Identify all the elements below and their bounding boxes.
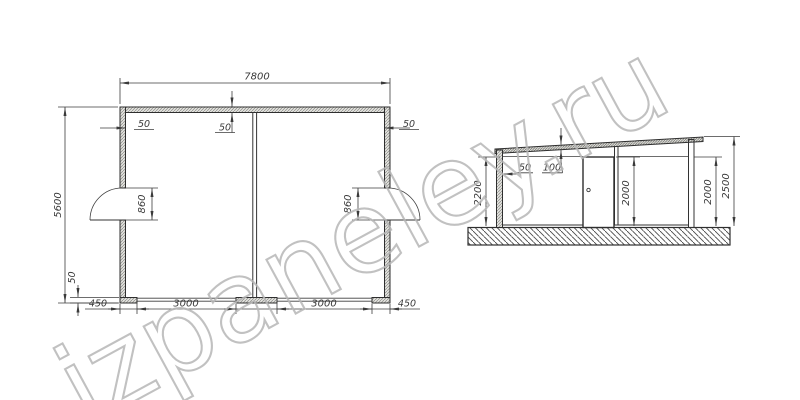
elevation-foundation — [468, 228, 730, 246]
technical-drawing-page: 7800 5600 50 50 50 — [0, 0, 800, 400]
elevation-dim-total-height-label: 2500 — [721, 173, 732, 198]
plan-dim-total-depth: 5600 — [53, 107, 118, 303]
plan-dim-total-width-label: 7800 — [244, 72, 269, 83]
elevation-dim-door-height-label: 2000 — [621, 180, 632, 205]
elevation-door-handle — [587, 188, 590, 191]
plan-left-door-arc — [90, 188, 122, 220]
plan-left-wall-upper — [120, 107, 126, 188]
elevation-dim-right-inner-height-label: 2000 — [703, 179, 714, 204]
plan-dim-bottom-right-segment-label: 450 — [398, 299, 416, 310]
plan-dim-bottom-wall-thickness-label: 50 — [67, 271, 78, 283]
plan-dim-left-door-width: 860 — [126, 188, 158, 220]
plan-left-door — [90, 188, 122, 220]
plan-dim-right-wall-thickness-label: 50 — [403, 119, 415, 130]
plan-dim-total-depth-label: 5600 — [53, 192, 64, 217]
plan-top-wall — [120, 107, 390, 113]
plan-dim-left-door-width-label: 860 — [137, 194, 148, 213]
plan-dim-top-wall-thickness-label: 50 — [219, 123, 231, 134]
plan-dim-left-wall-thickness: 50 — [100, 119, 154, 130]
plan-dim-total-width: 7800 — [120, 72, 390, 105]
elevation-right-wall — [689, 140, 695, 228]
plan-dim-left-wall-thickness-label: 50 — [138, 119, 150, 130]
drawing-canvas: 7800 5600 50 50 50 — [0, 0, 800, 400]
elevation-dim-right-inner-height: 2000 — [695, 157, 723, 226]
